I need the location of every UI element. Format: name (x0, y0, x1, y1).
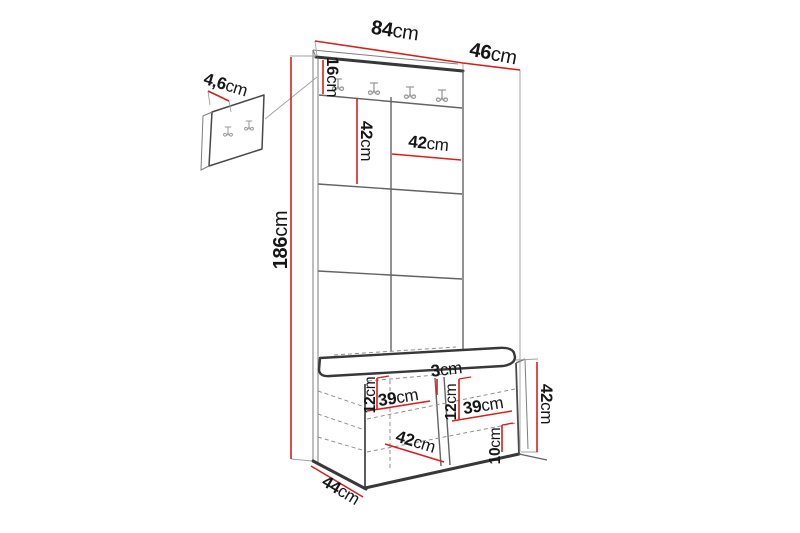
dim-left-compartment-width: 39cm (377, 385, 420, 410)
dim-bench-height: 42cm (537, 384, 556, 425)
dim-right-compartment-width: 39cm (462, 393, 505, 418)
dim-right-top-inset: 12cm (443, 384, 460, 421)
dim-hook-board-height: 16cm (323, 57, 342, 98)
dim-tile-width: 42cm (408, 132, 450, 155)
coat-hook-icon (369, 83, 380, 94)
bench-center-divider (435, 378, 441, 466)
dim-plinth-height: 10cm (487, 428, 504, 465)
dim-total-width: 84cm (370, 17, 420, 46)
dim-divider-thickness: 3cm (430, 358, 463, 381)
bench-seat-cushion (319, 348, 515, 376)
coat-hook-icon (437, 90, 448, 101)
coat-hook-icon (405, 87, 416, 98)
dim-total-height: 186cm (270, 211, 292, 270)
dim-tile-height: 42cm (357, 121, 376, 162)
dimension-labels: 84cm 46cm 16cm 4,6cm 42cm 42cm 186cm 3cm… (201, 17, 556, 509)
furniture-dimension-diagram: 84cm 46cm 16cm 4,6cm 42cm 42cm 186cm 3cm… (0, 0, 800, 533)
dim-bench-interior-depth: 42cm (394, 427, 438, 457)
